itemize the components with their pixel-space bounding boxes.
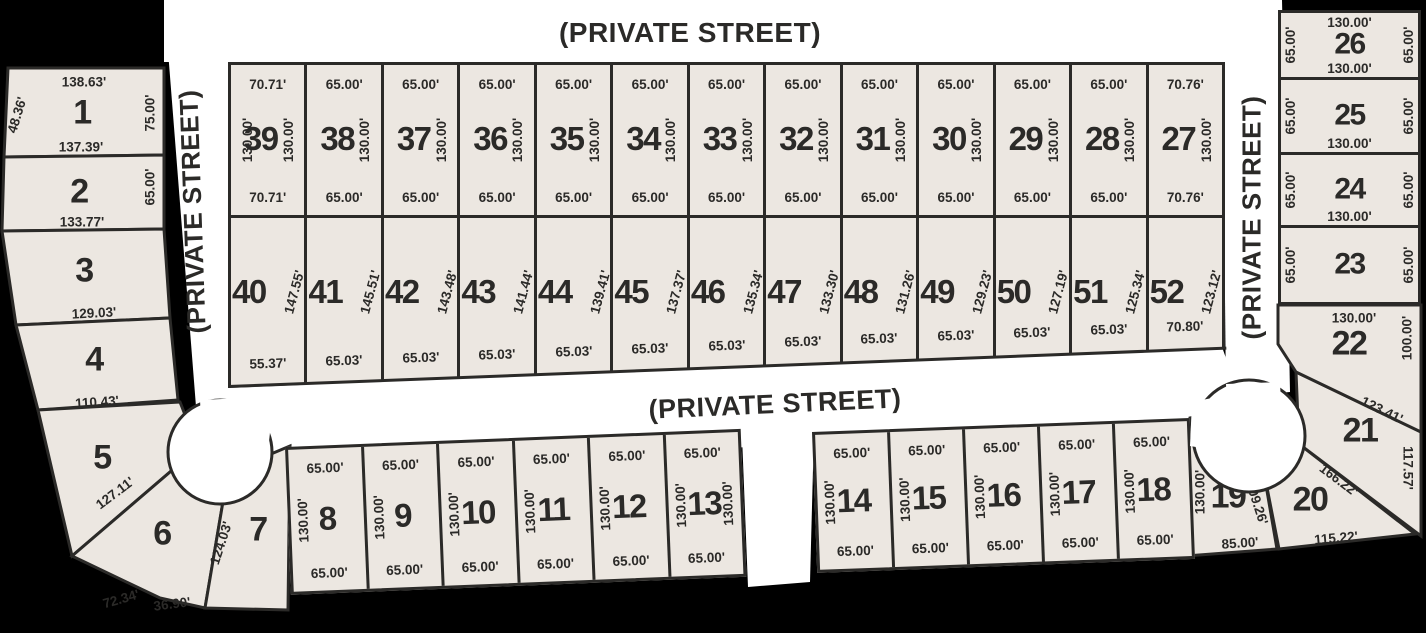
lot-18-top-dim: 65.00' [1133,434,1171,450]
lot-29: 65.00'29130.00'65.00' [993,65,1069,215]
lot-16-top-dim: 65.00' [983,439,1021,455]
lot-9-top-dim: 65.00' [382,457,420,473]
lot-5-number: 5 [93,439,110,478]
lot-22-right-dim: 100.00' [1400,316,1415,361]
lot-29-right-dim: 130.00' [1045,118,1060,163]
lot-35-right-dim: 130.00' [587,118,602,163]
plat-map: 70.71'39130.00'130.00'70.71'65.00'38130.… [0,0,1426,633]
lot-38-bottom-dim: 65.00' [326,190,363,205]
lot-19-bottom-dim: 85.00' [1221,534,1259,552]
lot-43-number: 43 [461,273,495,311]
lot-8-bottom-dim: 65.00' [311,565,349,581]
lot-2-right-dim: 65.00' [143,169,158,206]
lot-47: 47133.30'65.03' [763,218,839,385]
lot-33-number: 33 [703,120,737,158]
lot-34-bottom-dim: 65.00' [632,190,669,205]
lot-42-number: 42 [385,273,419,311]
lot-48-number: 48 [844,273,878,311]
lot-24-left-dim: 65.00' [1283,172,1298,209]
lot-46-side-dim: 135.34' [740,269,766,316]
lot-52-bottom-dim: 70.80' [1167,318,1205,334]
lot-48-side-dim: 131.26' [893,269,919,316]
lot-1-bottom-dim: 137.39' [59,140,104,155]
lot-50-number: 50 [997,273,1031,311]
lot-24: 65.00'2465.00'130.00' [1278,152,1421,228]
lot-17-number: 17 [1061,472,1096,511]
lot-42-bottom-dim: 65.03' [402,349,440,365]
lot-37: 65.00'37130.00'65.00' [381,65,457,215]
lot-9-bottom-dim: 65.00' [386,562,424,578]
lot-33-top-dim: 65.00' [708,77,745,92]
lot-40-bottom-dim: 55.37' [249,356,287,372]
lot-51-side-dim: 125.34' [1122,269,1148,316]
lot-36-top-dim: 65.00' [479,77,516,92]
lot-15-number: 15 [911,478,946,517]
lot-36-right-dim: 130.00' [510,118,525,163]
lot-13: 65.00'130.00'13130.00'65.00' [662,432,743,577]
lot-46-bottom-dim: 65.03' [708,337,746,353]
lot-44-number: 44 [538,273,572,311]
lot-21-right-dim: 117.57' [1401,446,1416,490]
lot-24-right-dim: 65.00' [1401,172,1416,209]
lot-39-bottom-dim: 70.71' [249,190,286,205]
lot-23-number: 23 [1334,247,1364,281]
lot-block-south-west: 65.00'130.00'865.00'65.00'130.00'965.00'… [285,429,747,595]
lot-39-right-dim: 130.00' [281,118,296,163]
lot-31: 65.00'31130.00'65.00' [840,65,916,215]
lot-27-top-dim: 70.76' [1167,77,1204,92]
lot-44: 44139.41'65.03' [534,218,610,385]
lot-34-right-dim: 130.00' [663,118,678,163]
lot-38-top-dim: 65.00' [326,77,363,92]
lot-43: 43141.44'65.03' [457,218,533,385]
lot-10-number: 10 [460,493,495,532]
lot-11-left-dim: 130.00' [521,489,538,534]
lot-1-top-dim: 138.63' [62,75,107,90]
lot-4-number: 4 [85,341,102,380]
lot-23-right-dim: 65.00' [1401,247,1416,284]
lot-39-top-dim: 70.71' [249,77,286,92]
lot-52-number: 52 [1150,273,1184,311]
lot-35: 65.00'35130.00'65.00' [534,65,610,215]
lot-8-left-dim: 130.00' [295,498,312,543]
lot-32: 65.00'32130.00'65.00' [763,65,839,215]
lot-26-number: 26 [1334,27,1364,61]
lot-28: 65.00'28130.00'65.00' [1069,65,1145,215]
lot-36-number: 36 [473,120,507,158]
lot-48-bottom-dim: 65.03' [861,331,899,347]
lot-32-top-dim: 65.00' [785,77,822,92]
lot-47-number: 47 [767,273,801,311]
lot-17-bottom-dim: 65.00' [1062,534,1100,550]
lot-51-number: 51 [1073,273,1107,311]
lot-40-number: 40 [232,273,266,311]
lot-22-number: 22 [1332,325,1367,364]
lot-26-bottom-dim: 130.00' [1327,61,1372,76]
lot-1-right-dim: 75.00' [143,95,158,132]
lot-52-side-dim: 123.12' [1199,269,1225,316]
lot-38-number: 38 [320,120,354,158]
lot-43-bottom-dim: 65.03' [478,346,516,362]
lot-10-top-dim: 65.00' [457,454,495,470]
lot-12-number: 12 [611,487,646,526]
lot-40-side-dim: 147.55' [281,269,307,316]
lot-25: 65.00'2565.00'130.00' [1278,77,1421,155]
lot-33-right-dim: 130.00' [740,118,755,163]
lot-33-bottom-dim: 65.00' [708,190,745,205]
lot-18-bottom-dim: 65.00' [1136,532,1174,548]
lot-block-south-east: 65.00'130.00'1465.00'65.00'130.00'1565.0… [812,418,1195,573]
lot-27: 70.76'27130.00'70.76' [1146,65,1222,215]
lot-30-top-dim: 65.00' [937,77,974,92]
lot-2-bottom-dim: 133.77' [60,215,105,230]
lot-21-number: 21 [1343,412,1378,451]
lot-16-bottom-dim: 65.00' [987,537,1025,553]
lot-49-side-dim: 129.23' [969,269,995,316]
lot-24-bottom-dim: 130.00' [1327,209,1372,224]
lot-29-bottom-dim: 65.00' [1014,190,1051,205]
lot-41-bottom-dim: 65.03' [325,353,363,369]
lot-13-bottom-dim: 65.00' [688,550,726,566]
lot-12-top-dim: 65.00' [608,448,646,464]
lot-34-number: 34 [626,120,660,158]
lot-27-right-dim: 130.00' [1198,118,1213,163]
lot-9-left-dim: 130.00' [370,495,387,540]
lot-13-number: 13 [687,484,722,523]
lot-35-number: 35 [550,120,584,158]
lot-25-bottom-dim: 130.00' [1327,136,1372,151]
lot-43-side-dim: 141.44' [510,269,536,316]
lot-37-right-dim: 130.00' [434,118,449,163]
lot-14-bottom-dim: 65.00' [837,543,875,559]
lot-10-bottom-dim: 65.00' [461,559,499,575]
lot-19-number: 19 [1211,478,1246,517]
lot-40: 40147.55'55.37' [231,218,304,385]
lot-34: 65.00'34130.00'65.00' [610,65,686,215]
lot-12-bottom-dim: 65.00' [612,553,650,569]
lot-49-bottom-dim: 65.03' [937,327,975,343]
lot-3-number: 3 [75,252,92,291]
lot-11-number: 11 [537,490,570,529]
lot-31-top-dim: 65.00' [861,77,898,92]
lot-15-bottom-dim: 65.00' [912,540,950,556]
lot-36: 65.00'36130.00'65.00' [457,65,533,215]
lot-11-bottom-dim: 65.00' [537,556,575,572]
lot-30: 65.00'30130.00'65.00' [916,65,992,215]
lot-22-top-dim: 130.00' [1332,311,1377,326]
lot-8-top-dim: 65.00' [306,460,344,476]
lot-41: 41145.51'65.03' [304,218,380,385]
lot-28-right-dim: 130.00' [1122,118,1137,163]
lot-35-top-dim: 65.00' [555,77,592,92]
lot-18-number: 18 [1136,470,1171,509]
lot-45-bottom-dim: 65.03' [631,340,669,356]
lot-25-left-dim: 65.00' [1283,98,1298,135]
lot-46-number: 46 [691,273,725,311]
lot-28-number: 28 [1085,120,1119,158]
lot-11-top-dim: 65.00' [533,451,571,467]
lot-47-side-dim: 133.30' [816,269,842,316]
street-name-right: (PRIVATE STREET) [1237,88,1268,348]
lot-41-number: 41 [308,273,342,311]
lot-17: 65.00'130.00'1765.00' [1037,424,1117,562]
lot-32-bottom-dim: 65.00' [785,190,822,205]
lot-4-bottom-dim: 110.43' [75,393,120,411]
lot-29-number: 29 [1009,120,1043,158]
lot-51-bottom-dim: 65.03' [1090,321,1128,337]
lot-31-number: 31 [856,120,890,158]
lot-39-left-dim: 130.00' [240,118,255,163]
lot-14: 65.00'130.00'1465.00' [815,432,892,570]
lot-15: 65.00'130.00'1565.00' [887,429,967,567]
lot-16: 65.00'130.00'1665.00' [962,427,1042,565]
lot-15-top-dim: 65.00' [908,442,946,458]
lot-27-bottom-dim: 70.76' [1167,190,1204,205]
lot-45-number: 45 [614,273,648,311]
lot-37-top-dim: 65.00' [402,77,439,92]
lot-13-right-dim: 130.00' [720,481,737,526]
lot-14-number: 14 [836,481,871,520]
lot-20-number: 20 [1293,481,1328,520]
lot-42-side-dim: 143.48' [434,269,460,316]
lot-45: 45137.37'65.03' [610,218,686,385]
lot-24-number: 24 [1334,172,1364,206]
lot-31-bottom-dim: 65.00' [861,190,898,205]
lot-44-bottom-dim: 65.03' [555,343,593,359]
lot-17-top-dim: 65.00' [1058,437,1096,453]
lot-37-number: 37 [397,120,431,158]
lot-34-top-dim: 65.00' [632,77,669,92]
lot-9-number: 9 [393,496,411,535]
lot-23-left-dim: 65.00' [1283,247,1298,284]
lot-44-side-dim: 139.41' [587,269,613,316]
lot-41-side-dim: 145.51' [357,269,383,316]
street-name-top: (PRIVATE STREET) [540,17,840,49]
lot-27-number: 27 [1162,120,1196,158]
lot-18: 65.00'130.00'1865.00' [1112,421,1192,559]
lot-2-number: 2 [70,173,87,212]
lot-8-number: 8 [318,499,336,538]
lot-45-side-dim: 137.37' [663,269,689,316]
lot-33: 65.00'33130.00'65.00' [687,65,763,215]
lot-29-top-dim: 65.00' [1014,77,1051,92]
lot-38: 65.00'38130.00'65.00' [304,65,380,215]
lot-14-top-dim: 65.00' [833,445,871,461]
lot-23: 65.00'2365.00' [1278,225,1421,305]
lot-28-top-dim: 65.00' [1090,77,1127,92]
lot-11: 65.00'130.00'1165.00' [511,438,592,583]
lot-37-bottom-dim: 65.00' [402,190,439,205]
lot-12: 65.00'130.00'1265.00' [587,435,668,580]
lot-50-bottom-dim: 65.03' [1014,324,1052,340]
lot-25-number: 25 [1334,98,1364,132]
lot-49-number: 49 [920,273,954,311]
lot-26: 130.00'65.00'2665.00'130.00' [1278,10,1421,80]
lot-50-side-dim: 127.19' [1046,269,1072,316]
lot-35-bottom-dim: 65.00' [555,190,592,205]
lot-3-bottom-dim: 129.03' [71,304,116,321]
lot-19-left-dim: 130.00' [1193,470,1208,515]
lot-32-right-dim: 130.00' [816,118,831,163]
lot-31-right-dim: 130.00' [892,118,907,163]
lot-26-right-dim: 65.00' [1401,27,1416,64]
lot-28-bottom-dim: 65.00' [1090,190,1127,205]
lot-25-right-dim: 65.00' [1401,98,1416,135]
lot-block-north: 70.71'39130.00'130.00'70.71'65.00'38130.… [228,62,1225,218]
lot-16-number: 16 [986,475,1021,514]
street-branch-surface [742,431,814,587]
lot-13-top-dim: 65.00' [684,445,722,461]
lot-26-left-dim: 65.00' [1283,27,1298,64]
lot-47-bottom-dim: 65.03' [784,334,822,350]
lot-8: 65.00'130.00'865.00' [288,447,366,592]
lot-36-bottom-dim: 65.00' [479,190,516,205]
lot-9: 65.00'130.00'965.00' [361,444,442,589]
lot-46: 46135.34'65.03' [687,218,763,385]
lot-6-number: 6 [153,515,170,554]
lot-7-number: 7 [249,511,266,550]
lot-30-number: 30 [932,120,966,158]
lot-38-right-dim: 130.00' [357,118,372,163]
lot-10: 65.00'130.00'1065.00' [436,441,517,586]
lot-39: 70.71'39130.00'130.00'70.71' [231,65,304,215]
lot-32-number: 32 [779,120,813,158]
lot-30-bottom-dim: 65.00' [937,190,974,205]
lot-42: 42143.48'65.03' [381,218,457,385]
lot-1-number: 1 [73,94,90,133]
lot-30-right-dim: 130.00' [969,118,984,163]
